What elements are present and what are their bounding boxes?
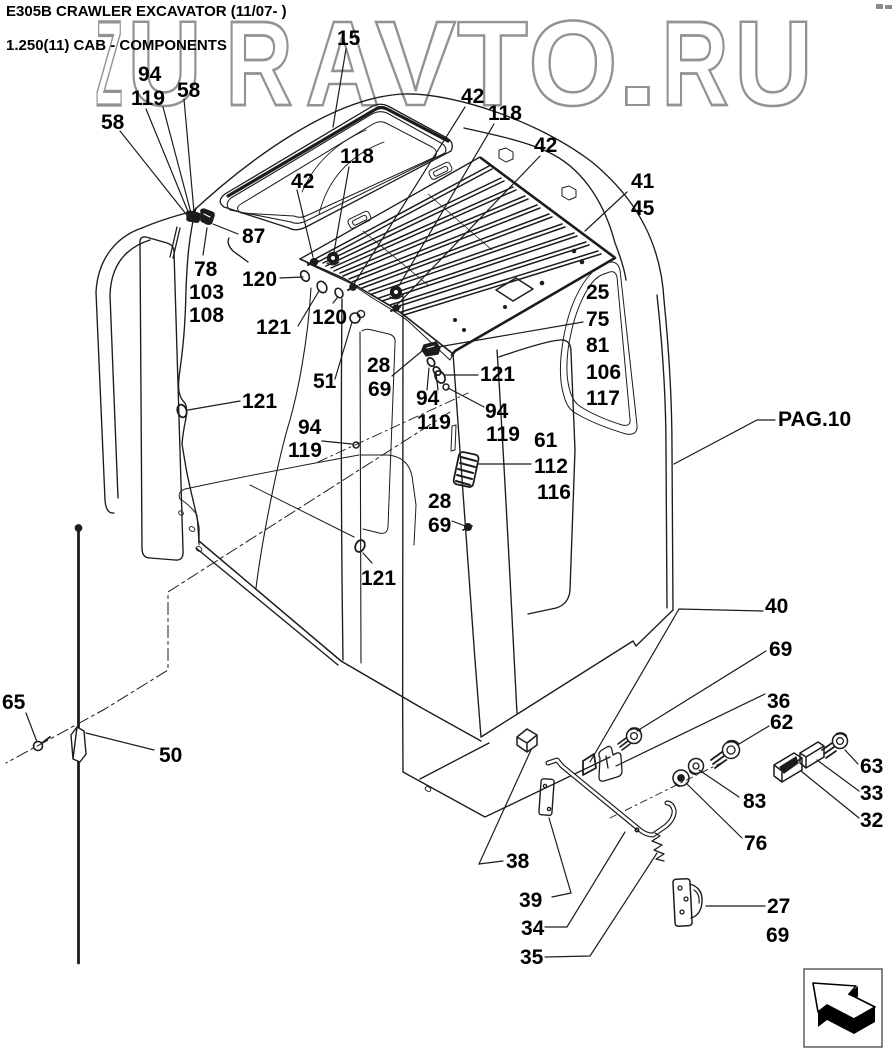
svg-text:108: 108 xyxy=(189,304,224,327)
svg-text:118: 118 xyxy=(488,102,522,125)
svg-text:119: 119 xyxy=(131,87,165,110)
svg-text:42: 42 xyxy=(291,170,314,193)
svg-text:118: 118 xyxy=(340,145,374,168)
svg-text:38: 38 xyxy=(506,850,530,873)
svg-text:50: 50 xyxy=(159,744,182,767)
svg-text:78: 78 xyxy=(194,258,218,281)
svg-text:112: 112 xyxy=(534,455,568,478)
svg-text:32: 32 xyxy=(860,809,883,832)
svg-text:E305B CRAWLER EXCAVATOR (11/07: E305B CRAWLER EXCAVATOR (11/07- ) xyxy=(6,3,287,20)
svg-text:PAG.10: PAG.10 xyxy=(778,408,851,431)
svg-text:94: 94 xyxy=(485,400,509,423)
svg-text:36: 36 xyxy=(767,690,790,713)
svg-text:58: 58 xyxy=(177,79,201,102)
svg-text:63: 63 xyxy=(860,755,883,778)
svg-text:106: 106 xyxy=(586,361,621,384)
svg-text:69: 69 xyxy=(766,924,789,947)
svg-text:V: V xyxy=(375,0,456,131)
svg-text:121: 121 xyxy=(242,390,277,413)
svg-text:121: 121 xyxy=(480,363,515,386)
svg-text:69: 69 xyxy=(428,514,451,537)
svg-text:27: 27 xyxy=(767,895,790,918)
svg-text:A: A xyxy=(305,0,379,131)
svg-text:35: 35 xyxy=(520,946,544,969)
svg-text:65: 65 xyxy=(2,691,26,714)
svg-text:75: 75 xyxy=(586,308,610,331)
svg-text:83: 83 xyxy=(743,790,766,813)
svg-text:120: 120 xyxy=(312,306,347,329)
svg-text:61: 61 xyxy=(534,429,558,452)
svg-text:39: 39 xyxy=(519,889,542,912)
svg-text:15: 15 xyxy=(337,27,361,50)
svg-text:81: 81 xyxy=(586,334,610,357)
svg-text:94: 94 xyxy=(138,63,162,86)
svg-text:87: 87 xyxy=(242,225,265,248)
svg-text:34: 34 xyxy=(521,917,545,940)
svg-text:120: 120 xyxy=(242,268,277,291)
svg-text:42: 42 xyxy=(461,85,484,108)
svg-text:33: 33 xyxy=(860,782,883,805)
svg-text:25: 25 xyxy=(586,281,610,304)
svg-text:O: O xyxy=(528,0,617,132)
svg-text:117: 117 xyxy=(586,387,620,410)
svg-text:45: 45 xyxy=(631,197,655,220)
svg-text:41: 41 xyxy=(631,170,655,193)
svg-text:76: 76 xyxy=(744,832,767,855)
svg-text:103: 103 xyxy=(189,281,224,304)
svg-text:1.250(11) CAB - COMPONENTS: 1.250(11) CAB - COMPONENTS xyxy=(6,37,227,54)
svg-text:62: 62 xyxy=(770,711,793,734)
svg-text:40: 40 xyxy=(765,595,788,618)
svg-text:28: 28 xyxy=(428,490,452,513)
svg-text:42: 42 xyxy=(534,134,557,157)
svg-text:R: R xyxy=(661,0,728,131)
svg-text:119: 119 xyxy=(288,439,322,462)
svg-text:119: 119 xyxy=(486,423,520,446)
svg-text:.: . xyxy=(616,0,660,131)
svg-text:69: 69 xyxy=(368,378,391,401)
svg-text:121: 121 xyxy=(256,316,291,339)
svg-text:28: 28 xyxy=(367,354,391,377)
svg-text:94: 94 xyxy=(416,387,440,410)
svg-text:121: 121 xyxy=(361,567,396,590)
svg-text:119: 119 xyxy=(417,411,451,434)
svg-text:116: 116 xyxy=(537,481,571,504)
svg-text:U: U xyxy=(734,0,813,131)
svg-text:58: 58 xyxy=(101,111,125,134)
svg-text:94: 94 xyxy=(298,416,322,439)
svg-text:51: 51 xyxy=(313,370,337,393)
svg-text:69: 69 xyxy=(769,638,792,661)
